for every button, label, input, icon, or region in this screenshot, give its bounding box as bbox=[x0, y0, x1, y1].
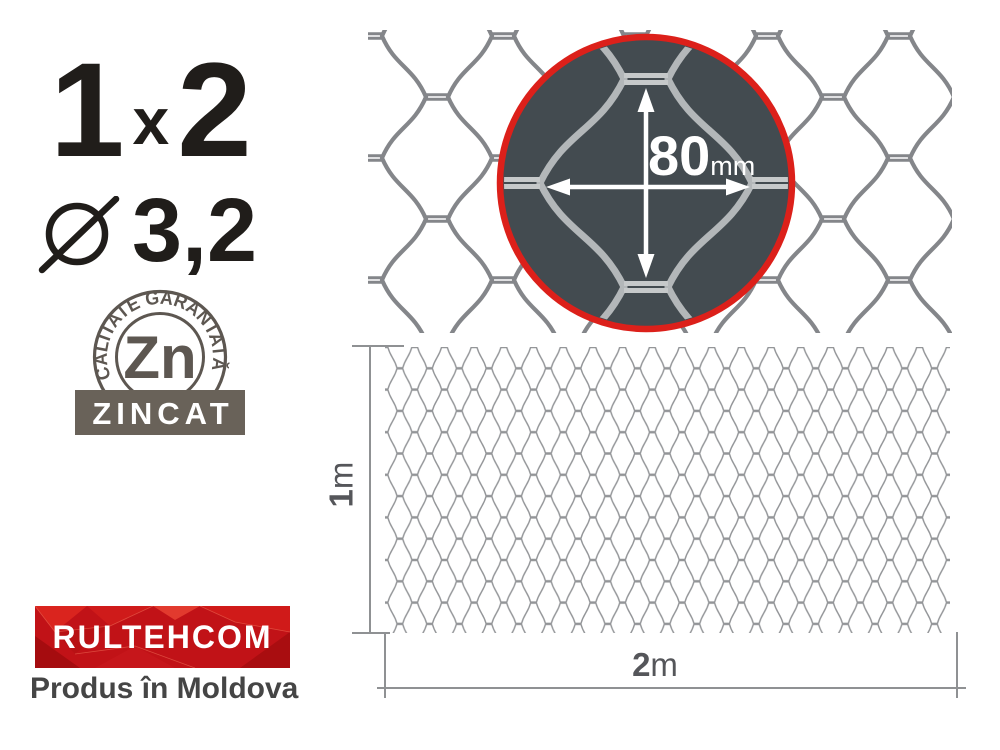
sheet-width-value: 2 bbox=[632, 648, 650, 681]
size-separator: x bbox=[133, 88, 170, 154]
cell-size-value: 80 bbox=[648, 128, 710, 184]
quality-badge: CALITATE GARANTATĂ Zn ZINCAT bbox=[70, 285, 255, 437]
brand-banner: RULTEHCOM bbox=[35, 606, 290, 668]
diameter-icon bbox=[38, 196, 122, 276]
diameter-value: 3,2 bbox=[132, 186, 257, 276]
sheet-height-value: 1 bbox=[325, 489, 358, 507]
origin-text: Produs în Moldova bbox=[30, 672, 298, 706]
mesh-sheet bbox=[385, 347, 950, 633]
size-height: 1 bbox=[50, 44, 125, 178]
cell-size-label: 80 mm bbox=[648, 128, 755, 184]
brand-name: RULTEHCOM bbox=[35, 606, 290, 668]
wire-diameter-label: 3,2 bbox=[38, 186, 257, 276]
cell-size-unit: mm bbox=[710, 153, 755, 180]
sheet-height-unit: m bbox=[325, 462, 358, 490]
sheet-width-unit: m bbox=[650, 648, 678, 681]
zincat-banner-text: ZINCAT bbox=[92, 396, 233, 431]
size-label: 1 x 2 bbox=[50, 44, 252, 178]
product-illustration: 1 x 2 3,2 CALITATE GARANTATĂ Zn ZINCAT bbox=[0, 0, 1000, 750]
badge-element-symbol: Zn bbox=[123, 324, 196, 391]
sheet-width-label: 2 m bbox=[595, 648, 715, 681]
size-width: 2 bbox=[177, 44, 252, 178]
sheet-height-label: 1 m bbox=[325, 450, 358, 520]
